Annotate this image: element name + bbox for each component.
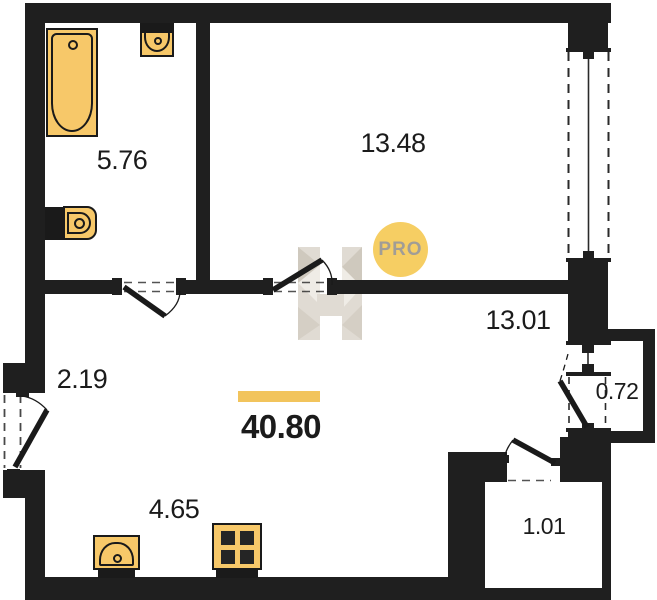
room-area-label-bathroom: 5.76 [74, 145, 170, 176]
room-area-label-bedroom: 13.48 [343, 128, 443, 159]
storage-door [505, 440, 555, 481]
room-area-label-balcony: 0.72 [577, 378, 657, 405]
room-area-label-hallway: 2.19 [37, 364, 127, 395]
floor-plan: PRO [0, 0, 657, 600]
entrance-door [5, 395, 48, 468]
total-area-label: 40.80 [221, 408, 341, 446]
bathroom-door [124, 283, 180, 317]
doors-windows-overlay [0, 0, 657, 600]
center-door [273, 260, 332, 292]
room-area-label-living-room: 13.01 [468, 305, 568, 336]
room-area-label-storage: 1.01 [494, 513, 594, 540]
window-right [569, 52, 609, 258]
room-area-label-kitchen: 4.65 [124, 494, 224, 525]
